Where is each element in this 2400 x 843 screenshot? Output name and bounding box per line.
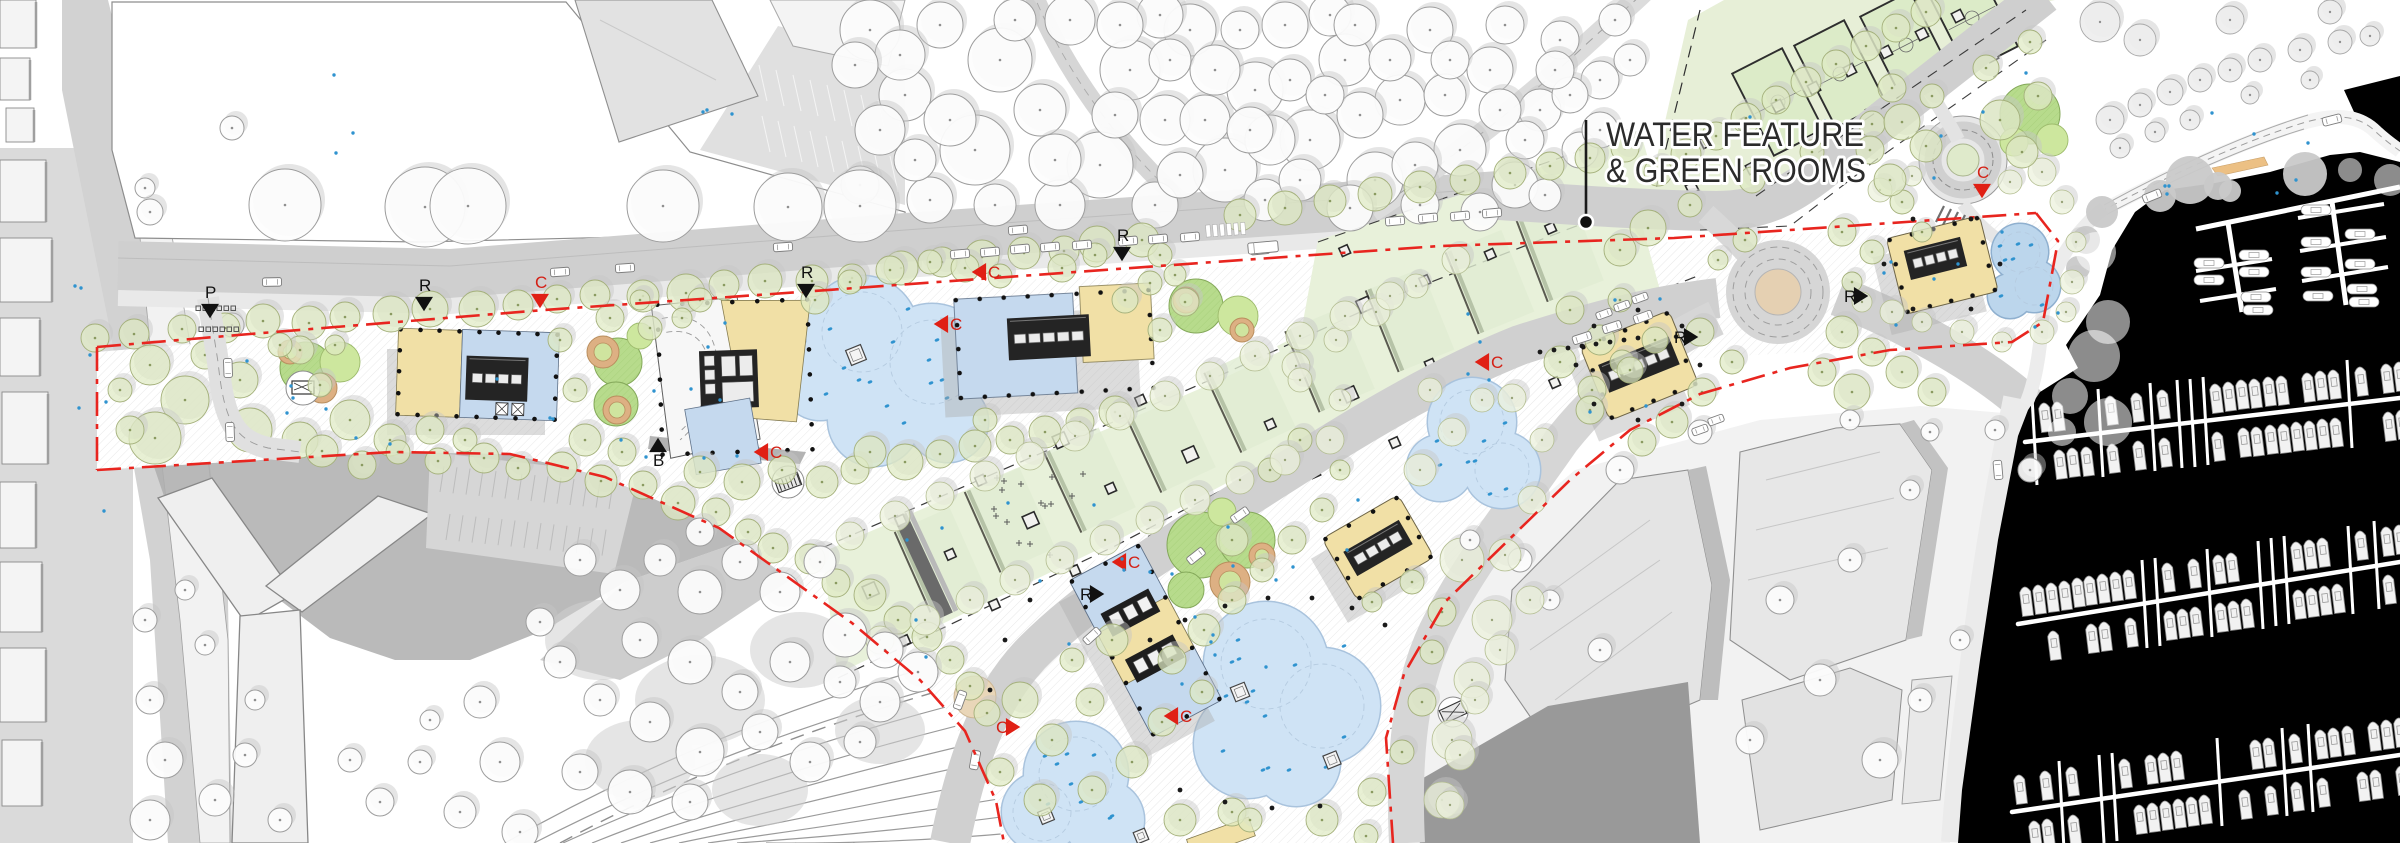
svg-text:B: B: [653, 451, 664, 470]
svg-text:P: P: [205, 283, 216, 302]
svg-text:C: C: [996, 718, 1008, 737]
svg-text:R: R: [1080, 585, 1092, 604]
svg-text:C: C: [988, 263, 1000, 282]
svg-text:C: C: [770, 443, 782, 462]
svg-text:C: C: [1491, 353, 1503, 372]
svg-text:WATER FEATURE: WATER FEATURE: [1606, 116, 1864, 154]
svg-text:R: R: [419, 276, 431, 295]
svg-text:R: R: [1674, 328, 1686, 347]
svg-text:C: C: [1977, 163, 1989, 182]
svg-text:C: C: [1128, 553, 1140, 572]
svg-text:& GREEN ROOMS: & GREEN ROOMS: [1606, 152, 1866, 190]
svg-text:R: R: [1844, 287, 1856, 306]
svg-text:C: C: [535, 273, 547, 292]
svg-text:R: R: [801, 263, 813, 282]
svg-text:C: C: [1180, 707, 1192, 726]
svg-text:C: C: [950, 315, 962, 334]
svg-text:R: R: [1117, 226, 1129, 245]
